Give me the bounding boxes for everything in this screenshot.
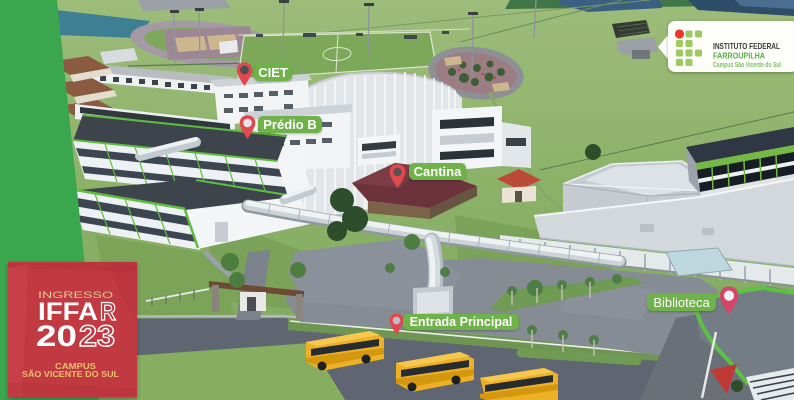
svg-text:SÃO VICENTE DO SUL: SÃO VICENTE DO SUL <box>22 369 119 379</box>
svg-text:INSTITUTO FEDERAL: INSTITUTO FEDERAL <box>713 41 780 51</box>
svg-text:23: 23 <box>79 320 115 353</box>
svg-text:FARROUPILHA: FARROUPILHA <box>713 51 765 61</box>
svg-text:20: 20 <box>36 320 77 353</box>
svg-text:Campus São Vicente do Sul: Campus São Vicente do Sul <box>713 60 781 69</box>
